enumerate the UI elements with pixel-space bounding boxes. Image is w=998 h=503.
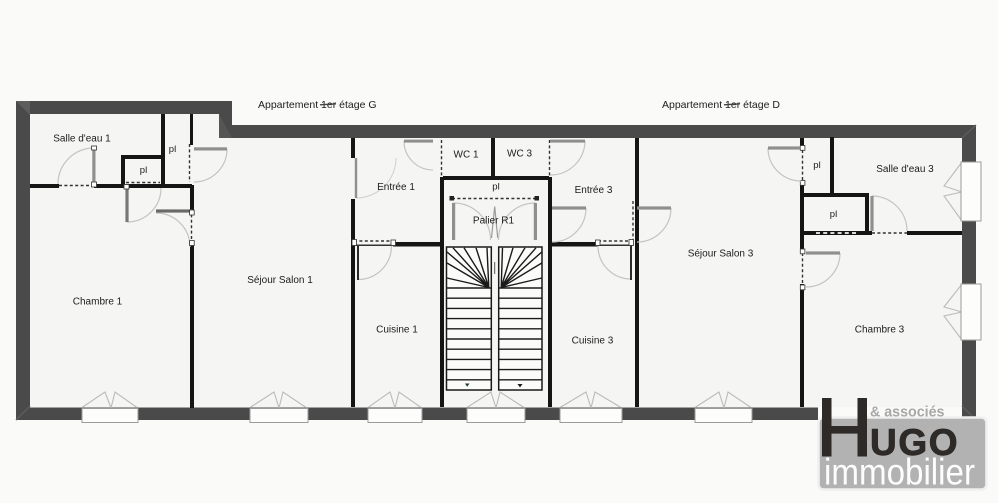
svg-text:WC 1: WC 1: [454, 150, 479, 161]
svg-text:Séjour Salon 1: Séjour Salon 1: [247, 275, 313, 286]
svg-text:Salle d'eau 3: Salle d'eau 3: [876, 164, 934, 175]
svg-text:Cuisine 1: Cuisine 1: [376, 325, 418, 336]
svg-text:immobilier: immobilier: [824, 452, 975, 493]
svg-text:Appartement 1er étage G: Appartement 1er étage G: [258, 99, 377, 111]
svg-text:Palier R1: Palier R1: [473, 216, 515, 227]
svg-text:Séjour Salon 3: Séjour Salon 3: [688, 249, 754, 260]
svg-text:pl: pl: [140, 165, 147, 176]
svg-text:Appartement 1er étage D: Appartement 1er étage D: [662, 99, 780, 111]
svg-text:Chambre 1: Chambre 1: [73, 297, 123, 308]
svg-text:pl: pl: [169, 144, 176, 155]
svg-text:pl: pl: [813, 160, 820, 171]
svg-text:Salle d'eau 1: Salle d'eau 1: [53, 134, 111, 145]
svg-text:Entrée 3: Entrée 3: [575, 185, 613, 196]
svg-text:Cuisine 3: Cuisine 3: [572, 336, 614, 347]
svg-text:Chambre 3: Chambre 3: [855, 325, 905, 336]
svg-text:Entrée 1: Entrée 1: [377, 182, 415, 193]
svg-text:pl: pl: [830, 209, 837, 220]
svg-text:& associés: & associés: [870, 405, 945, 421]
svg-text:WC 3: WC 3: [507, 149, 532, 160]
svg-text:pl: pl: [492, 182, 499, 193]
